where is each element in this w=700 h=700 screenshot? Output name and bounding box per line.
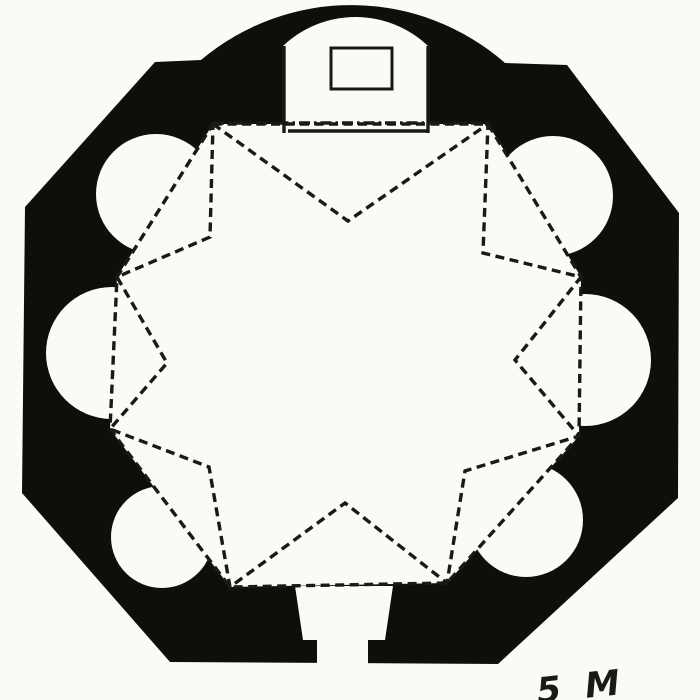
niche-exedra	[469, 463, 583, 577]
scanned-plan-page: 5 M	[0, 0, 700, 700]
scale-annotation: 5 M	[535, 663, 628, 700]
niche-exedra	[96, 134, 216, 254]
apse-chamber	[283, 17, 428, 133]
niche-exedra	[111, 486, 213, 588]
niche-exedra	[519, 294, 651, 426]
octagonal-building-floor-plan: 5 M	[0, 0, 700, 700]
niche-exedra	[493, 136, 613, 256]
